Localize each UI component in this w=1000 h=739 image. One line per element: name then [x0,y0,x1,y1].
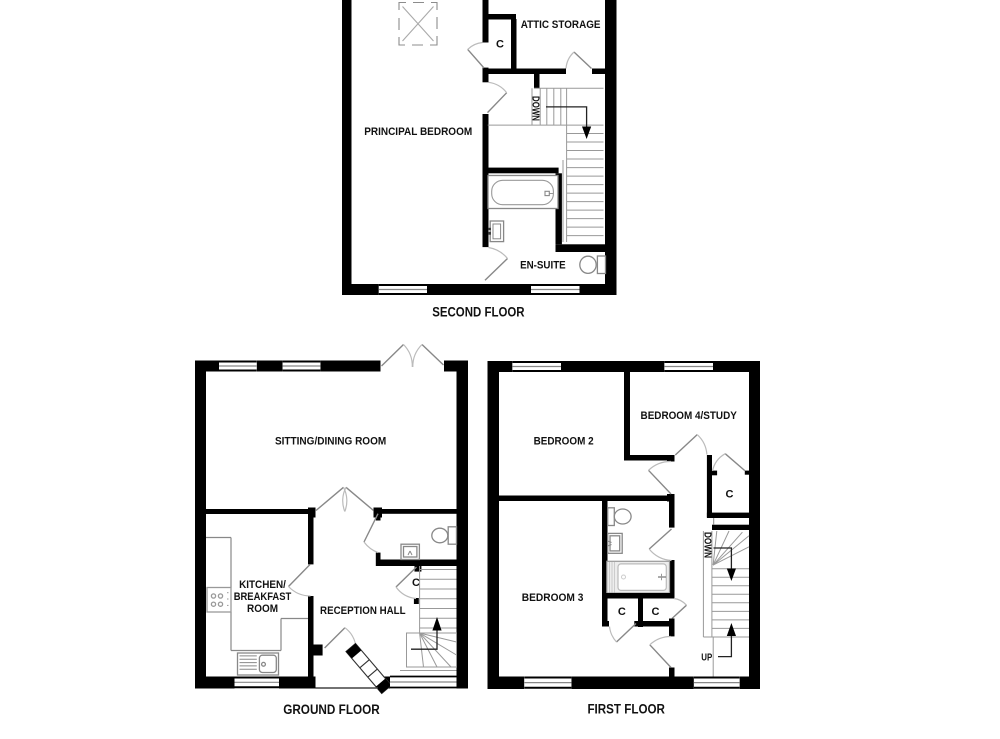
svg-text:C: C [618,606,626,618]
svg-text:RECEPTION HALL: RECEPTION HALL [320,605,406,617]
svg-text:ATTIC STORAGE: ATTIC STORAGE [521,19,601,31]
svg-text:SITTING/DINING ROOM: SITTING/DINING ROOM [275,436,386,448]
svg-text:GROUND FLOOR: GROUND FLOOR [283,702,380,717]
svg-text:BEDROOM 3: BEDROOM 3 [522,592,584,604]
svg-text:C: C [726,489,734,501]
svg-text:BEDROOM 4/STUDY: BEDROOM 4/STUDY [641,410,738,422]
svg-text:FIRST FLOOR: FIRST FLOOR [587,702,665,717]
svg-text:EN-SUITE: EN-SUITE [520,259,566,271]
svg-text:BREAKFAST: BREAKFAST [234,591,292,603]
svg-text:DOWN: DOWN [701,532,713,558]
svg-text:C: C [652,606,660,618]
svg-text:DOWN: DOWN [529,96,541,121]
svg-text:BEDROOM 2: BEDROOM 2 [534,435,594,447]
svg-text:C: C [412,577,420,589]
svg-text:ROOM: ROOM [247,603,278,615]
svg-text:PRINCIPAL BEDROOM: PRINCIPAL BEDROOM [364,126,472,138]
svg-text:C: C [496,39,504,51]
svg-text:UP: UP [701,652,712,663]
svg-text:SECOND FLOOR: SECOND FLOOR [432,305,525,320]
svg-text:KITCHEN/: KITCHEN/ [239,579,286,591]
